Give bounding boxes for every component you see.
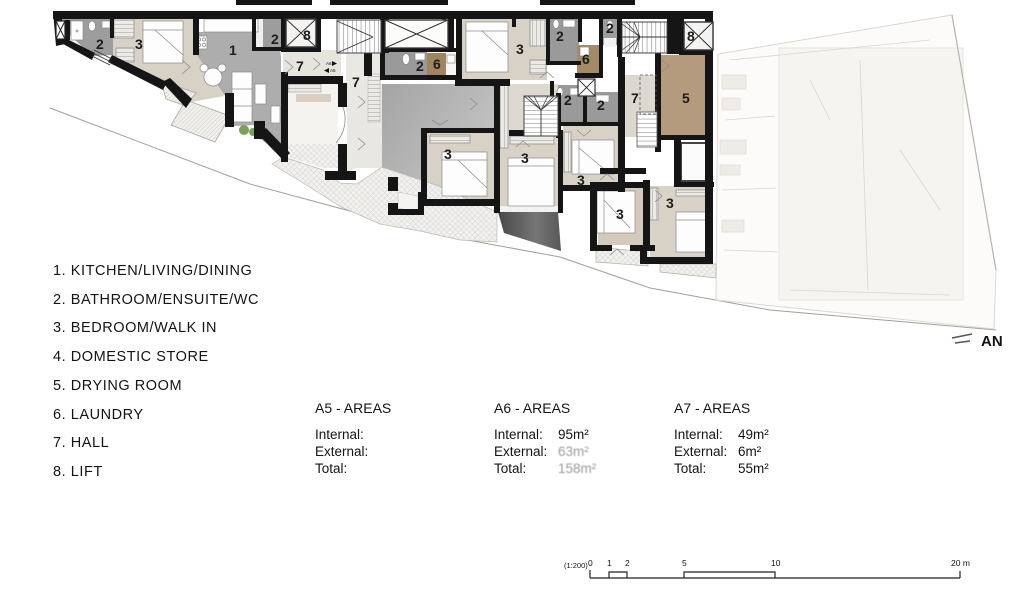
svg-text:2: 2: [625, 558, 630, 568]
svg-text:3: 3: [521, 150, 529, 166]
svg-text:2: 2: [597, 97, 605, 113]
svg-text:AN: AN: [981, 333, 1003, 350]
svg-text:A5: A5: [330, 68, 336, 73]
svg-text:2: 2: [271, 31, 279, 47]
svg-text:1: 1: [607, 558, 612, 568]
svg-text:3: 3: [516, 41, 524, 57]
svg-text:3: 3: [444, 146, 452, 162]
svg-text:8: 8: [687, 28, 695, 44]
svg-text:2: 2: [556, 28, 564, 44]
svg-text:1: 1: [229, 42, 237, 58]
svg-text:2: 2: [606, 20, 614, 36]
svg-text:6: 6: [582, 51, 590, 67]
svg-text:3: 3: [616, 206, 624, 222]
svg-text:3: 3: [666, 195, 674, 211]
svg-text:0: 0: [588, 558, 593, 568]
svg-text:7: 7: [296, 58, 304, 74]
svg-text:7: 7: [352, 74, 360, 90]
svg-text:5: 5: [682, 90, 690, 106]
svg-text:A6: A6: [326, 61, 332, 66]
svg-text:8: 8: [303, 27, 311, 43]
svg-text:10: 10: [771, 558, 781, 568]
svg-text:(1:200): (1:200): [564, 561, 588, 570]
svg-text:2: 2: [416, 58, 424, 74]
svg-text:5: 5: [682, 558, 687, 568]
svg-text:20 m: 20 m: [951, 558, 970, 568]
svg-text:3: 3: [577, 172, 585, 188]
svg-text:2: 2: [564, 92, 572, 108]
svg-text:2: 2: [96, 36, 104, 52]
svg-text:7: 7: [631, 90, 639, 106]
svg-text:3: 3: [135, 36, 143, 52]
svg-text:6: 6: [433, 56, 441, 72]
